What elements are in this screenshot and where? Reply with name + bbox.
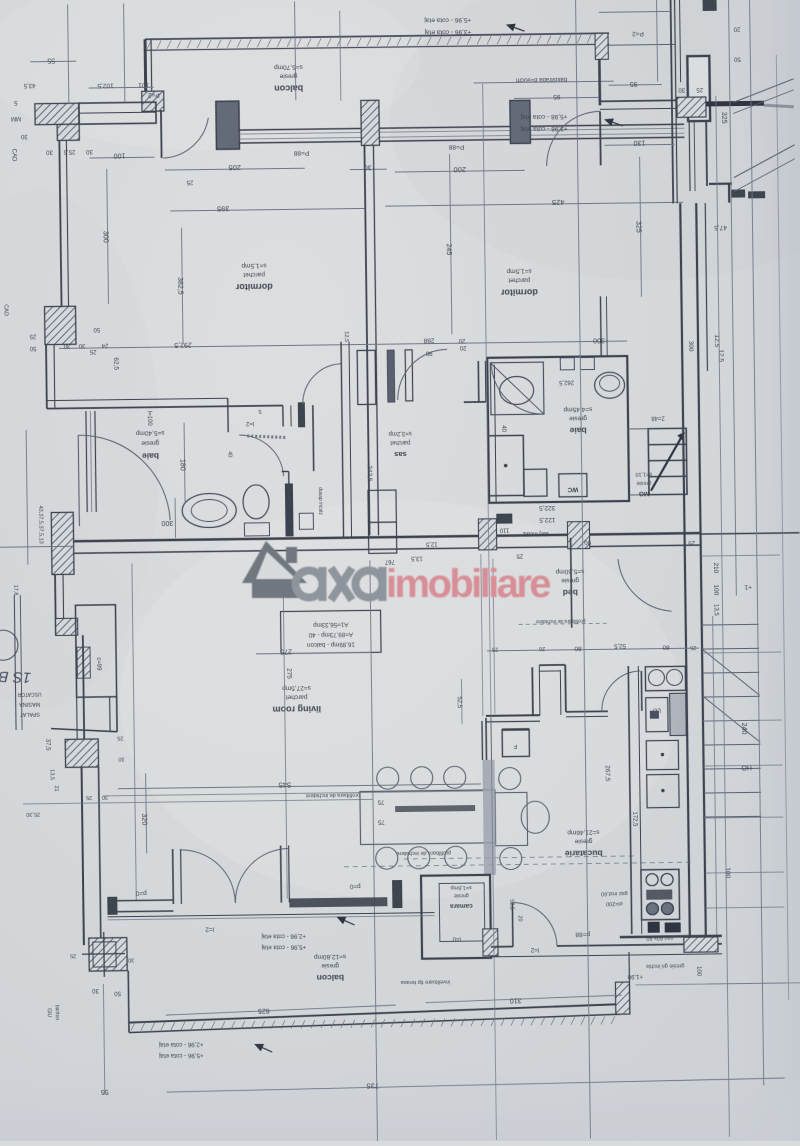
svg-text:25: 25 (117, 735, 123, 741)
svg-text:s=4,45mp: s=4,45mp (563, 405, 592, 412)
svg-text:16,89mp - balcon: 16,89mp - balcon (306, 641, 354, 649)
svg-text:el=200: el=200 (606, 900, 623, 906)
svg-text:52,5: 52,5 (456, 696, 462, 708)
svg-text:240: 240 (740, 723, 747, 735)
svg-text:25: 25 (688, 539, 695, 545)
svg-text:gresie: gresie (454, 892, 469, 898)
svg-text:25,30: 25,30 (26, 811, 40, 817)
svg-text:95: 95 (630, 80, 638, 87)
svg-text:gresie: gresie (574, 838, 592, 845)
svg-text:50: 50 (733, 55, 740, 61)
svg-text:bucatarie: bucatarie (564, 848, 602, 858)
svg-text:baie: baie (569, 426, 586, 436)
svg-text:gresie: gresie (569, 415, 587, 422)
svg-text:320: 320 (140, 813, 147, 825)
svg-text:1S B.: 1S B. (0, 667, 31, 685)
svg-text:43,37,5,37,5,13: 43,37,5,37,5,13 (37, 506, 43, 544)
svg-text:profilbara de inchidere: profilbara de inchidere (396, 849, 451, 856)
svg-text:47,5: 47,5 (714, 224, 727, 231)
svg-text:275: 275 (285, 668, 292, 679)
svg-text:P=88: P=88 (448, 143, 464, 150)
svg-text:625: 625 (258, 1007, 270, 1014)
svg-text:gresie: gresie (321, 962, 339, 969)
svg-text:+2,96 - cota etaj: +2,96 - cota etaj (159, 1041, 204, 1049)
svg-text:101: 101 (138, 81, 149, 88)
svg-text:130: 130 (633, 139, 645, 146)
svg-text:+1: +1 (744, 583, 752, 590)
svg-text:50: 50 (29, 345, 36, 351)
svg-text:l=0: l=0 (452, 935, 461, 941)
svg-text:100: 100 (695, 966, 701, 977)
svg-text:parchet: parchet (390, 439, 410, 445)
svg-text:37,5: 37,5 (44, 739, 50, 751)
svg-text:30: 30 (63, 342, 70, 348)
svg-text:30: 30 (20, 133, 27, 139)
svg-text:MM: MM (11, 115, 21, 121)
svg-text:s=5,70mp: s=5,70mp (274, 63, 303, 70)
svg-text:baie: baie (142, 451, 159, 461)
svg-text:95: 95 (553, 93, 561, 100)
svg-text:80: 80 (662, 643, 670, 650)
svg-text:alej incalz: alej incalz (522, 530, 548, 536)
svg-text:gresie: gresie (279, 72, 297, 79)
svg-text:gresie: gresie (141, 439, 159, 446)
svg-text:gresie: gresie (561, 577, 579, 584)
svg-text:s=27,5mp: s=27,5mp (282, 684, 311, 691)
svg-text:gresie gri inchis: gresie gri inchis (646, 962, 685, 969)
svg-text:P=2: P=2 (632, 30, 644, 37)
svg-text:122,5: 122,5 (539, 516, 556, 523)
svg-text:242,5: 242,5 (366, 465, 373, 482)
svg-text:110: 110 (499, 527, 509, 533)
svg-text:262,5: 262,5 (558, 379, 574, 385)
svg-text:s=1,10: s=1,10 (635, 471, 652, 477)
svg-text:100: 100 (712, 584, 719, 595)
svg-text:sas: sas (394, 450, 407, 459)
svg-text:20: 20 (458, 337, 465, 343)
svg-text:balcon: balcon (317, 973, 345, 983)
svg-text:17,8: 17,8 (12, 585, 18, 596)
svg-text:20: 20 (459, 344, 466, 350)
svg-text:100: 100 (114, 152, 126, 159)
svg-text:75: 75 (377, 798, 384, 804)
svg-text:dormitor: dormitor (500, 287, 538, 297)
svg-text:75: 75 (377, 818, 384, 824)
svg-text:P=2: P=2 (147, 91, 159, 98)
svg-text:30: 30 (118, 756, 124, 762)
svg-text:+2,96 - cota etaj: +2,96 - cota etaj (261, 932, 306, 940)
svg-text:25: 25 (89, 348, 96, 354)
svg-text:52,5: 52,5 (508, 899, 514, 910)
svg-text:GIU: GIU (46, 1008, 52, 1017)
svg-text:5: 5 (258, 408, 261, 414)
svg-text:24: 24 (101, 342, 108, 348)
svg-text:2=48: 2=48 (651, 415, 665, 421)
svg-text:25: 25 (86, 794, 92, 800)
svg-text:180: 180 (179, 459, 186, 471)
svg-text:30: 30 (91, 987, 98, 993)
svg-text:30: 30 (102, 794, 108, 800)
svg-text:profilbara de inchidere: profilbara de inchidere (536, 618, 586, 625)
svg-text:l=2: l=2 (205, 925, 214, 932)
svg-text:30: 30 (128, 957, 134, 963)
svg-text:20: 20 (539, 645, 545, 651)
svg-text:245: 245 (445, 243, 452, 255)
svg-text:c=99: c=99 (95, 657, 101, 671)
svg-text:102,5: 102,5 (97, 82, 114, 89)
svg-text:25: 25 (696, 86, 703, 92)
svg-text:325: 325 (634, 221, 641, 233)
svg-text:395: 395 (217, 204, 230, 213)
svg-text:25: 25 (70, 952, 76, 958)
svg-text:bariton: bariton (54, 1005, 60, 1021)
svg-text:40: 40 (226, 451, 232, 457)
svg-text:30: 30 (78, 342, 85, 348)
svg-text:CAD: CAD (2, 304, 8, 316)
svg-text:s=12,60mp: s=12,60mp (313, 953, 346, 960)
svg-text:90: 90 (584, 538, 591, 544)
svg-text:CAD: CAD (10, 149, 16, 162)
svg-text:p=0: p=0 (349, 883, 361, 890)
svg-text:l=2: l=2 (530, 946, 539, 952)
svg-text:200: 200 (453, 165, 466, 174)
svg-text:20: 20 (517, 915, 523, 921)
svg-text:p=0: p=0 (135, 889, 147, 896)
svg-text:300: 300 (161, 519, 173, 526)
svg-text:40: 40 (500, 425, 506, 432)
svg-text:P=88: P=88 (293, 149, 309, 156)
svg-text:267,5: 267,5 (604, 765, 611, 782)
svg-text:30: 30 (85, 148, 92, 154)
svg-text:USCATOR: USCATOR (17, 691, 41, 697)
svg-text:25,5: 25,5 (63, 148, 75, 154)
svg-text:F: F (513, 742, 517, 748)
svg-text:living room: living room (272, 704, 321, 715)
svg-text:s=1,6mp: s=1,6mp (450, 884, 471, 890)
svg-text:bed: bed (563, 588, 578, 598)
svg-text:s=21,46mp: s=21,46mp (567, 828, 600, 835)
svg-text:322,5: 322,5 (539, 504, 556, 511)
svg-text:s=5,40mp: s=5,40mp (135, 429, 164, 436)
svg-text:profilbara de inchidere: profilbara de inchidere (306, 792, 361, 799)
svg-text:30: 30 (678, 86, 685, 92)
svg-text:s=5,60mp: s=5,60mp (555, 568, 584, 575)
svg-text:52,5: 52,5 (613, 642, 625, 648)
svg-text:l=2: l=2 (245, 420, 254, 426)
svg-text:300: 300 (102, 231, 109, 243)
svg-text:12,5: 12,5 (717, 349, 724, 362)
svg-text:205: 205 (228, 163, 241, 172)
svg-text:210: 210 (712, 562, 719, 573)
svg-text:invelitoare tip terasa: invelitoare tip terasa (400, 978, 450, 985)
svg-text:300: 300 (687, 341, 694, 352)
svg-text:13,5: 13,5 (49, 769, 55, 780)
svg-text:balcon: balcon (274, 83, 303, 93)
svg-text:50: 50 (93, 326, 100, 332)
svg-text:13,5: 13,5 (712, 604, 718, 616)
svg-text:545: 545 (278, 780, 291, 789)
svg-text:+5,96 - cota etaj: +5,96 - cota etaj (424, 16, 471, 24)
svg-text:43,5: 43,5 (23, 82, 35, 88)
svg-text:30: 30 (45, 149, 52, 155)
svg-text:parchet: parchet (286, 693, 308, 700)
svg-text:+5,96 - cota etaj: +5,96 - cota etaj (159, 1052, 204, 1060)
svg-text:camara: camara (450, 902, 473, 909)
svg-text:parchet: parchet (243, 271, 265, 278)
svg-text:HO: HO (741, 763, 752, 770)
svg-text:12,5: 12,5 (343, 331, 349, 342)
svg-text:dusap incalz: dusap incalz (317, 487, 323, 515)
svg-text:dormitor: dormitor (235, 282, 273, 292)
svg-text:l=100: l=100 (146, 411, 152, 427)
svg-text:WC: WC (567, 486, 578, 493)
svg-text:s=3,2mp: s=3,2mp (388, 430, 412, 436)
svg-text:+5,98 - cota etaj: +5,98 - cota etaj (521, 113, 568, 121)
svg-text:12,5: 12,5 (425, 541, 437, 547)
svg-text:13,5: 13,5 (410, 555, 422, 561)
svg-text:MG: MG (639, 490, 650, 497)
svg-text:21: 21 (53, 785, 59, 791)
svg-text:25: 25 (492, 646, 498, 652)
svg-text:172,5: 172,5 (631, 811, 637, 827)
svg-text:80: 80 (574, 645, 582, 652)
svg-text:20: 20 (733, 25, 740, 31)
svg-text:90: 90 (425, 350, 432, 356)
svg-text:425: 425 (552, 198, 565, 207)
svg-text:25: 25 (690, 644, 696, 650)
svg-text:310: 310 (510, 996, 522, 1003)
svg-text:imobiliare: imobiliare (386, 562, 550, 606)
svg-text:A1=56,33mp: A1=56,33mp (312, 621, 348, 628)
svg-text:parchet: parchet (508, 276, 530, 283)
svg-text:275: 275 (280, 647, 292, 654)
svg-text:292,5: 292,5 (174, 341, 192, 348)
svg-text:25: 25 (29, 333, 36, 339)
svg-text:s=1,5mp: s=1,5mp (506, 267, 532, 274)
svg-text:50: 50 (113, 990, 120, 996)
svg-text:55: 55 (47, 56, 55, 63)
svg-text:+5,96 - cota etaj: +5,96 - cota etaj (262, 943, 307, 951)
svg-text:382,5: 382,5 (176, 277, 183, 295)
svg-text:gaz inst,60: gaz inst,60 (601, 890, 628, 896)
svg-text:288: 288 (423, 337, 434, 344)
svg-text:325: 325 (720, 112, 727, 124)
svg-text:62,5: 62,5 (112, 357, 119, 370)
svg-text:300: 300 (593, 336, 605, 343)
svg-text:735: 735 (366, 1081, 379, 1090)
svg-text:25: 25 (186, 179, 193, 185)
svg-text:25: 25 (516, 552, 523, 558)
svg-text:A=89,73mp - 40: A=89,73mp - 40 (308, 631, 353, 639)
svg-text:+3,96 - cota etaj: +3,96 - cota etaj (425, 28, 472, 36)
svg-text:s=1,5mp: s=1,5mp (241, 262, 267, 269)
